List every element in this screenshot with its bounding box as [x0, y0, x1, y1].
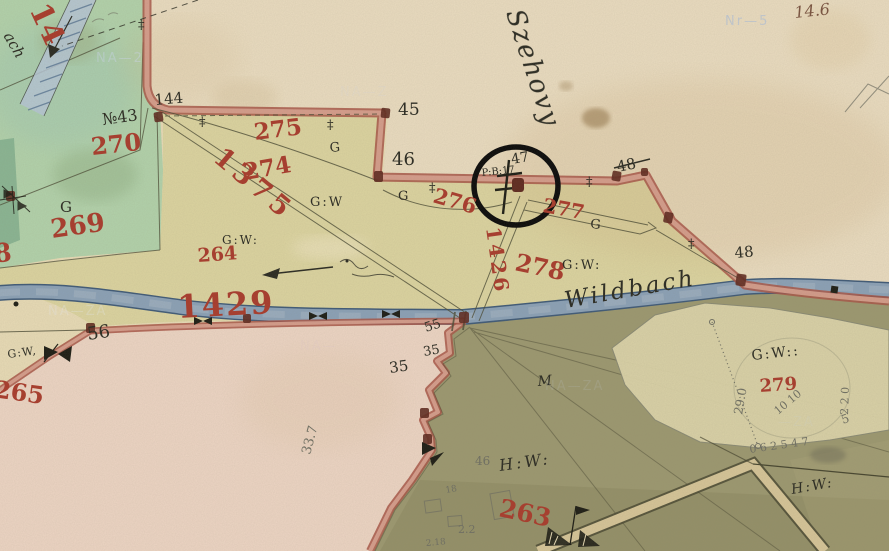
- cadastral-map-scan: ‡ ‡ ‡ ‡ ‡ ‡: [0, 0, 889, 551]
- paper-grain-overlay: [0, 0, 889, 551]
- map-canvas: ‡ ‡ ‡ ‡ ‡ ‡: [0, 0, 889, 551]
